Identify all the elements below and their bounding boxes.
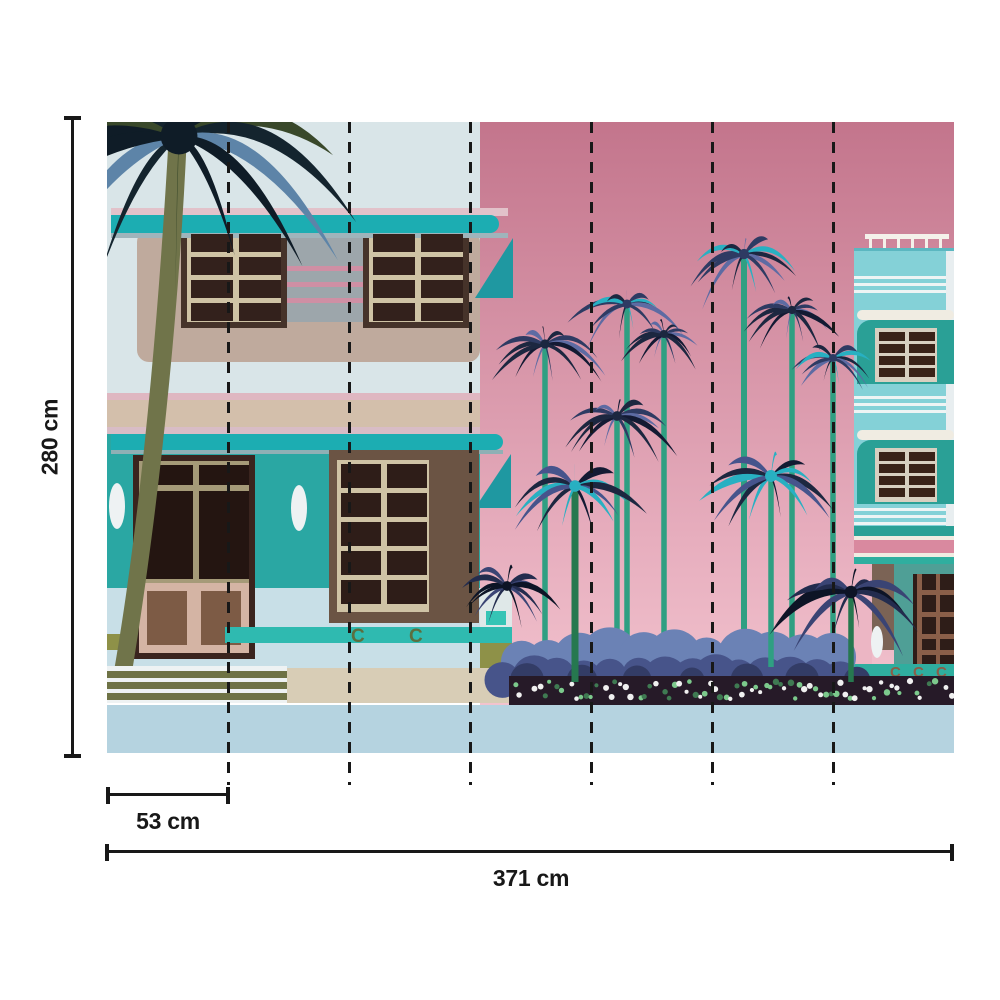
street <box>107 705 954 753</box>
height-dimension-line <box>71 118 74 757</box>
total-width-dimension-line <box>107 850 954 853</box>
panel-divider-line <box>711 122 714 785</box>
wallpaper-mural-image: C C <box>107 122 954 753</box>
entry-steps <box>107 666 287 703</box>
panel-divider-line <box>227 122 230 785</box>
product-dimension-diagram: C C <box>0 0 1000 1000</box>
height-label: 280 cm <box>37 399 64 475</box>
planter-ornament-c: C <box>351 626 365 647</box>
dimension-tick <box>64 754 81 758</box>
panel-divider-line <box>590 122 593 785</box>
panel-width-dimension-line <box>108 793 228 796</box>
panel-divider-line <box>348 122 351 785</box>
panel-divider-line <box>469 122 472 785</box>
panel-width-label: 53 cm <box>136 808 200 835</box>
planter-ornament-c: C <box>409 626 423 647</box>
total-width-label: 371 cm <box>493 865 569 892</box>
mural-illustration: C C <box>107 122 954 753</box>
panel-divider-line <box>832 122 835 785</box>
dimension-tick <box>950 844 954 861</box>
dimension-tick <box>226 787 230 804</box>
